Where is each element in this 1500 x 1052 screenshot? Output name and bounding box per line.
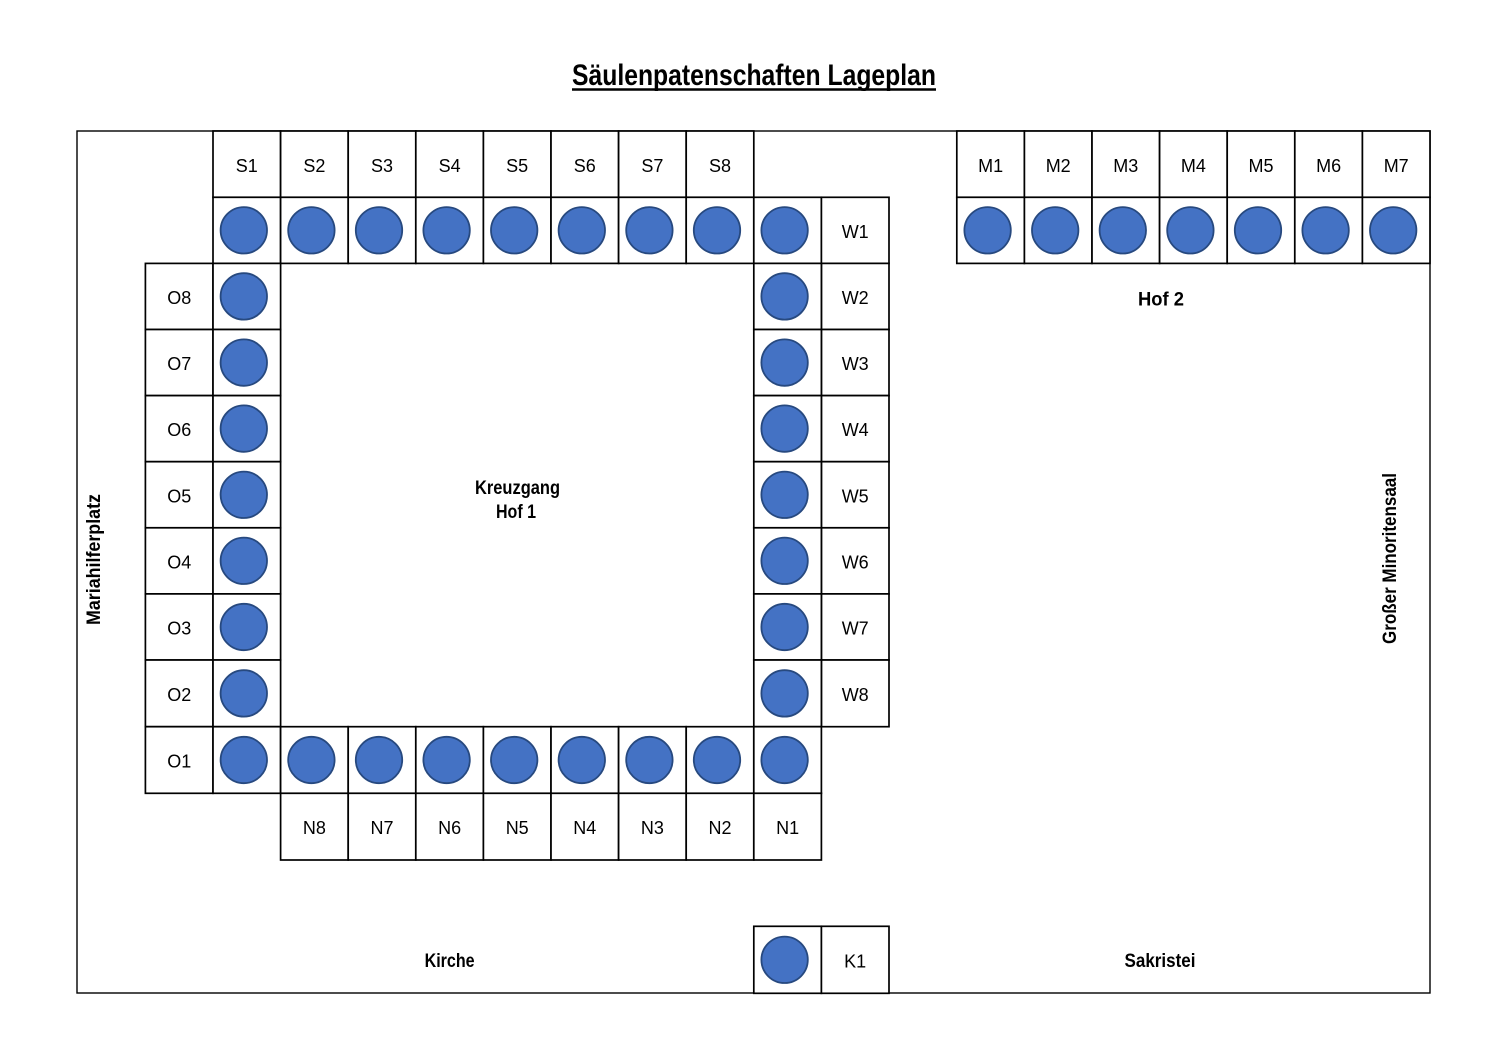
- svg-text:K1: K1: [844, 951, 866, 971]
- svg-text:M7: M7: [1384, 156, 1409, 176]
- svg-text:N2: N2: [708, 818, 731, 838]
- svg-text:S2: S2: [303, 156, 325, 176]
- svg-text:O2: O2: [167, 685, 191, 705]
- svg-text:M5: M5: [1248, 156, 1273, 176]
- svg-text:W7: W7: [842, 619, 869, 639]
- svg-text:N8: N8: [303, 818, 326, 838]
- svg-text:M2: M2: [1046, 156, 1071, 176]
- svg-text:S3: S3: [371, 156, 393, 176]
- svg-text:M3: M3: [1113, 156, 1138, 176]
- svg-text:O7: O7: [167, 354, 191, 374]
- svg-text:N5: N5: [506, 818, 529, 838]
- svg-text:Sakristei: Sakristei: [1125, 951, 1196, 972]
- svg-text:N7: N7: [370, 818, 393, 838]
- svg-text:O3: O3: [167, 619, 191, 639]
- svg-text:Säulenpatenschaften Lageplan: Säulenpatenschaften Lageplan: [572, 59, 936, 92]
- svg-text:N1: N1: [776, 818, 799, 838]
- svg-text:W3: W3: [842, 354, 869, 374]
- svg-text:O1: O1: [167, 752, 191, 772]
- svg-text:N6: N6: [438, 818, 461, 838]
- svg-text:S4: S4: [439, 156, 461, 176]
- svg-text:M6: M6: [1316, 156, 1341, 176]
- svg-text:Kreuzgang: Kreuzgang: [475, 478, 560, 499]
- svg-text:S6: S6: [574, 156, 596, 176]
- svg-text:S8: S8: [709, 156, 731, 176]
- svg-text:W4: W4: [842, 420, 869, 440]
- svg-text:W2: W2: [842, 288, 869, 308]
- svg-text:N4: N4: [573, 818, 596, 838]
- svg-text:S7: S7: [641, 156, 663, 176]
- svg-text:W8: W8: [842, 685, 869, 705]
- svg-text:M4: M4: [1181, 156, 1206, 176]
- svg-text:W5: W5: [842, 486, 869, 506]
- svg-text:Kirche: Kirche: [425, 951, 475, 972]
- svg-text:O8: O8: [167, 288, 191, 308]
- svg-text:W6: W6: [842, 552, 869, 572]
- svg-text:S1: S1: [236, 156, 258, 176]
- svg-text:N3: N3: [641, 818, 664, 838]
- svg-text:Mariahilferplatz: Mariahilferplatz: [84, 494, 105, 625]
- svg-text:Hof 1: Hof 1: [496, 502, 536, 523]
- svg-text:W1: W1: [842, 222, 869, 242]
- svg-text:M1: M1: [978, 156, 1003, 176]
- svg-text:O5: O5: [167, 486, 191, 506]
- svg-text:O6: O6: [167, 420, 191, 440]
- svg-text:Großer Minoritensaal: Großer Minoritensaal: [1380, 473, 1401, 644]
- svg-text:O4: O4: [167, 552, 191, 572]
- svg-text:Hof 2: Hof 2: [1138, 290, 1184, 311]
- svg-text:S5: S5: [506, 156, 528, 176]
